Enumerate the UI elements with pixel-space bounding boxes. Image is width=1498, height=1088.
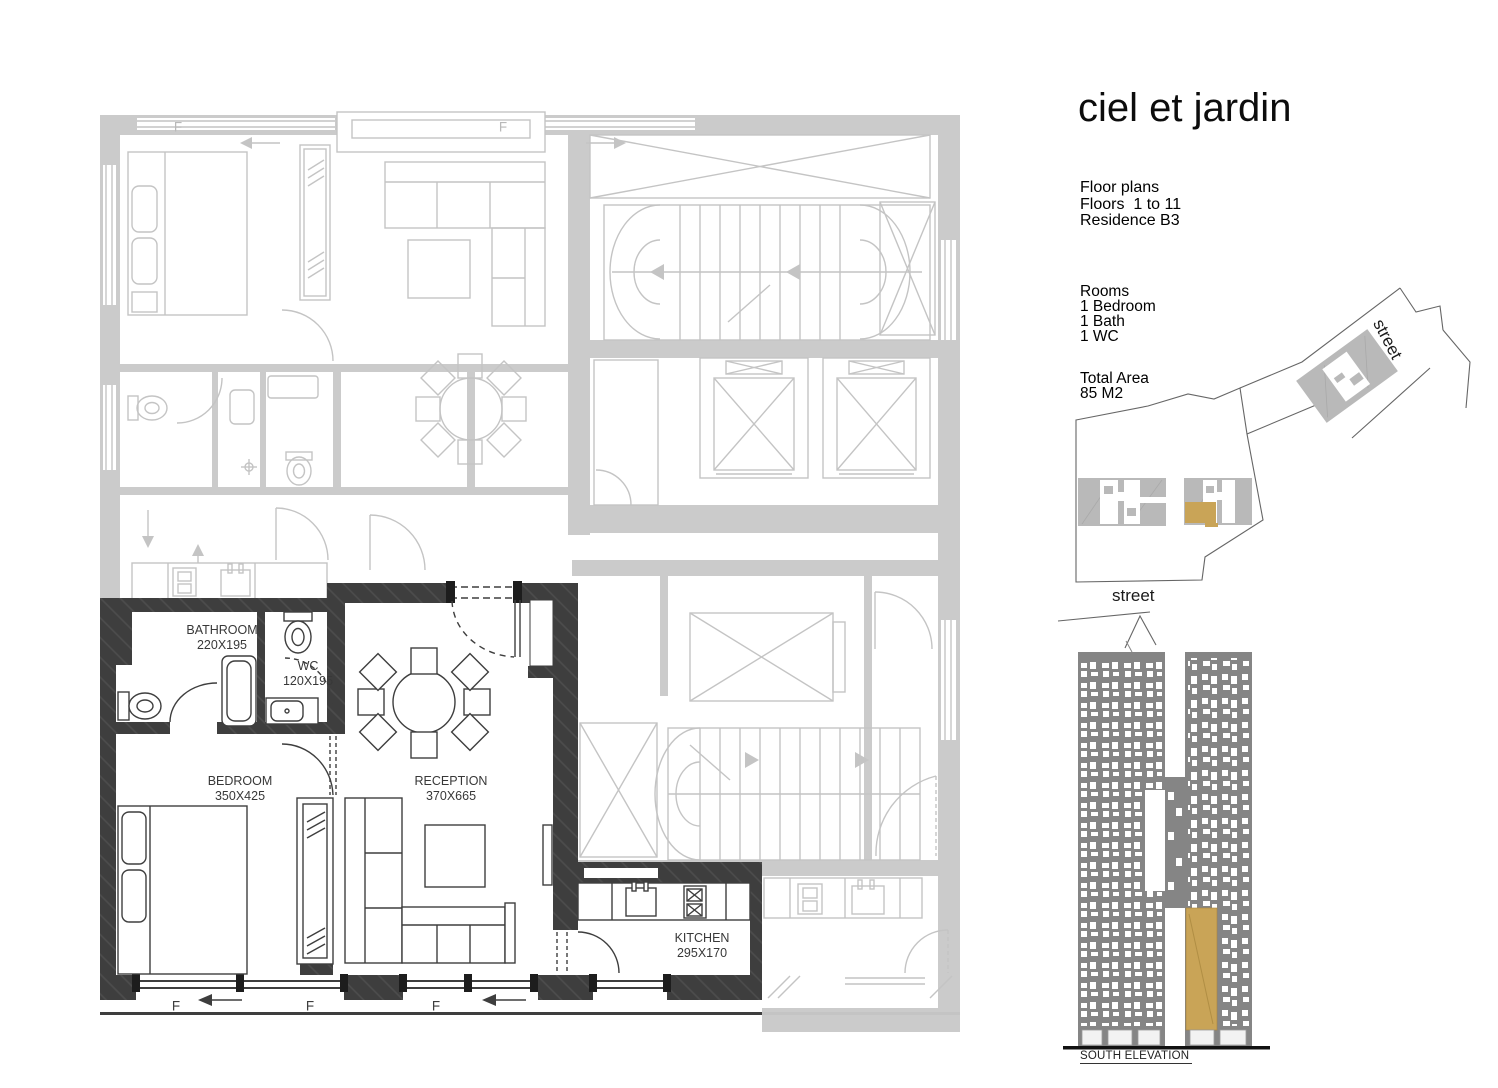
stair-core-upper bbox=[590, 135, 935, 505]
unit-windows bbox=[132, 974, 671, 992]
room-label-bathroom: BATHROOM 220X195 bbox=[186, 623, 257, 653]
elevator-3 bbox=[690, 613, 845, 701]
room-label-reception: RECEPTION 370X665 bbox=[415, 774, 488, 804]
area-line: Total Area bbox=[1080, 371, 1149, 386]
info-line: Floors 1 to 11 bbox=[1080, 197, 1181, 214]
info-line: Floor plans bbox=[1080, 180, 1181, 197]
ground-line bbox=[1063, 1046, 1270, 1050]
elevator-2 bbox=[823, 358, 930, 478]
coffee-table bbox=[425, 825, 485, 887]
wardrobe bbox=[297, 798, 333, 964]
drawing bbox=[0, 0, 1498, 1088]
mirror-kitchen bbox=[762, 878, 960, 1015]
elevator-1 bbox=[700, 358, 808, 478]
room-label-kitchen: KITCHEN 295X170 bbox=[675, 931, 730, 961]
rooms-line: 1 Bedroom bbox=[1080, 299, 1156, 314]
rooms-line: Rooms bbox=[1080, 284, 1156, 299]
dining-table bbox=[358, 648, 490, 758]
room-label-wc: WC 120X195 bbox=[283, 659, 333, 689]
info-line: Residence B3 bbox=[1080, 213, 1181, 230]
window-mark: F bbox=[499, 120, 507, 135]
toilet-bathroom bbox=[118, 692, 161, 720]
rooms-line: 1 Bath bbox=[1080, 314, 1156, 329]
footprint-block-b bbox=[1184, 478, 1252, 527]
room-name: WC bbox=[283, 659, 333, 674]
floorplan-sheet: ciel et jardin Floor plans Floors 1 to 1… bbox=[0, 0, 1498, 1088]
room-label-bedroom: BEDROOM 350X425 bbox=[208, 774, 273, 804]
elevation-caption: SOUTH ELEVATION bbox=[1080, 1050, 1192, 1064]
room-dims: 220X195 bbox=[186, 638, 257, 653]
footprint-block-a bbox=[1078, 478, 1166, 526]
room-dims: 295X170 bbox=[675, 946, 730, 961]
page-title: ciel et jardin bbox=[1078, 86, 1291, 131]
street-label-lower: street bbox=[1112, 586, 1155, 606]
bed-upper bbox=[128, 152, 247, 315]
rooms-summary: Rooms 1 Bedroom 1 Bath 1 WC bbox=[1080, 284, 1156, 344]
sofa-upper bbox=[385, 162, 545, 326]
floorplan-info: Floor plans Floors 1 to 11 Residence B3 bbox=[1080, 180, 1181, 230]
bathroom-upper bbox=[128, 376, 318, 485]
room-dims: 350X425 bbox=[208, 789, 273, 804]
elevation bbox=[1063, 641, 1270, 1050]
room-name: KITCHEN bbox=[675, 931, 730, 946]
highlight-unit-plan bbox=[1185, 502, 1216, 523]
coffee-table-upper bbox=[408, 240, 470, 298]
total-area: Total Area 85 M2 bbox=[1080, 371, 1149, 401]
rooms-line: 1 WC bbox=[1080, 329, 1156, 344]
kitchen-counter-upper bbox=[132, 563, 327, 599]
room-dims: 370X665 bbox=[415, 789, 488, 804]
bed bbox=[118, 806, 247, 974]
console-table bbox=[543, 825, 552, 885]
tower-left bbox=[1078, 652, 1165, 1047]
room-dims: 120X195 bbox=[283, 674, 333, 689]
window-mark: F bbox=[432, 999, 440, 1014]
window-mark: F bbox=[172, 999, 180, 1014]
bathtub bbox=[222, 656, 256, 726]
kitchen-counter bbox=[578, 882, 750, 920]
sink-wc bbox=[266, 698, 318, 724]
tower-bridge bbox=[1165, 777, 1185, 908]
room-name: RECEPTION bbox=[415, 774, 488, 789]
window-mark: F bbox=[306, 999, 314, 1014]
area-line: 85 M2 bbox=[1080, 386, 1149, 401]
room-name: BATHROOM bbox=[186, 623, 257, 638]
window-mark: F bbox=[174, 120, 182, 135]
wardrobe-upper bbox=[300, 145, 330, 300]
stair-core-lower bbox=[580, 592, 936, 860]
toilet-wc bbox=[284, 612, 312, 653]
room-name: BEDROOM bbox=[208, 774, 273, 789]
